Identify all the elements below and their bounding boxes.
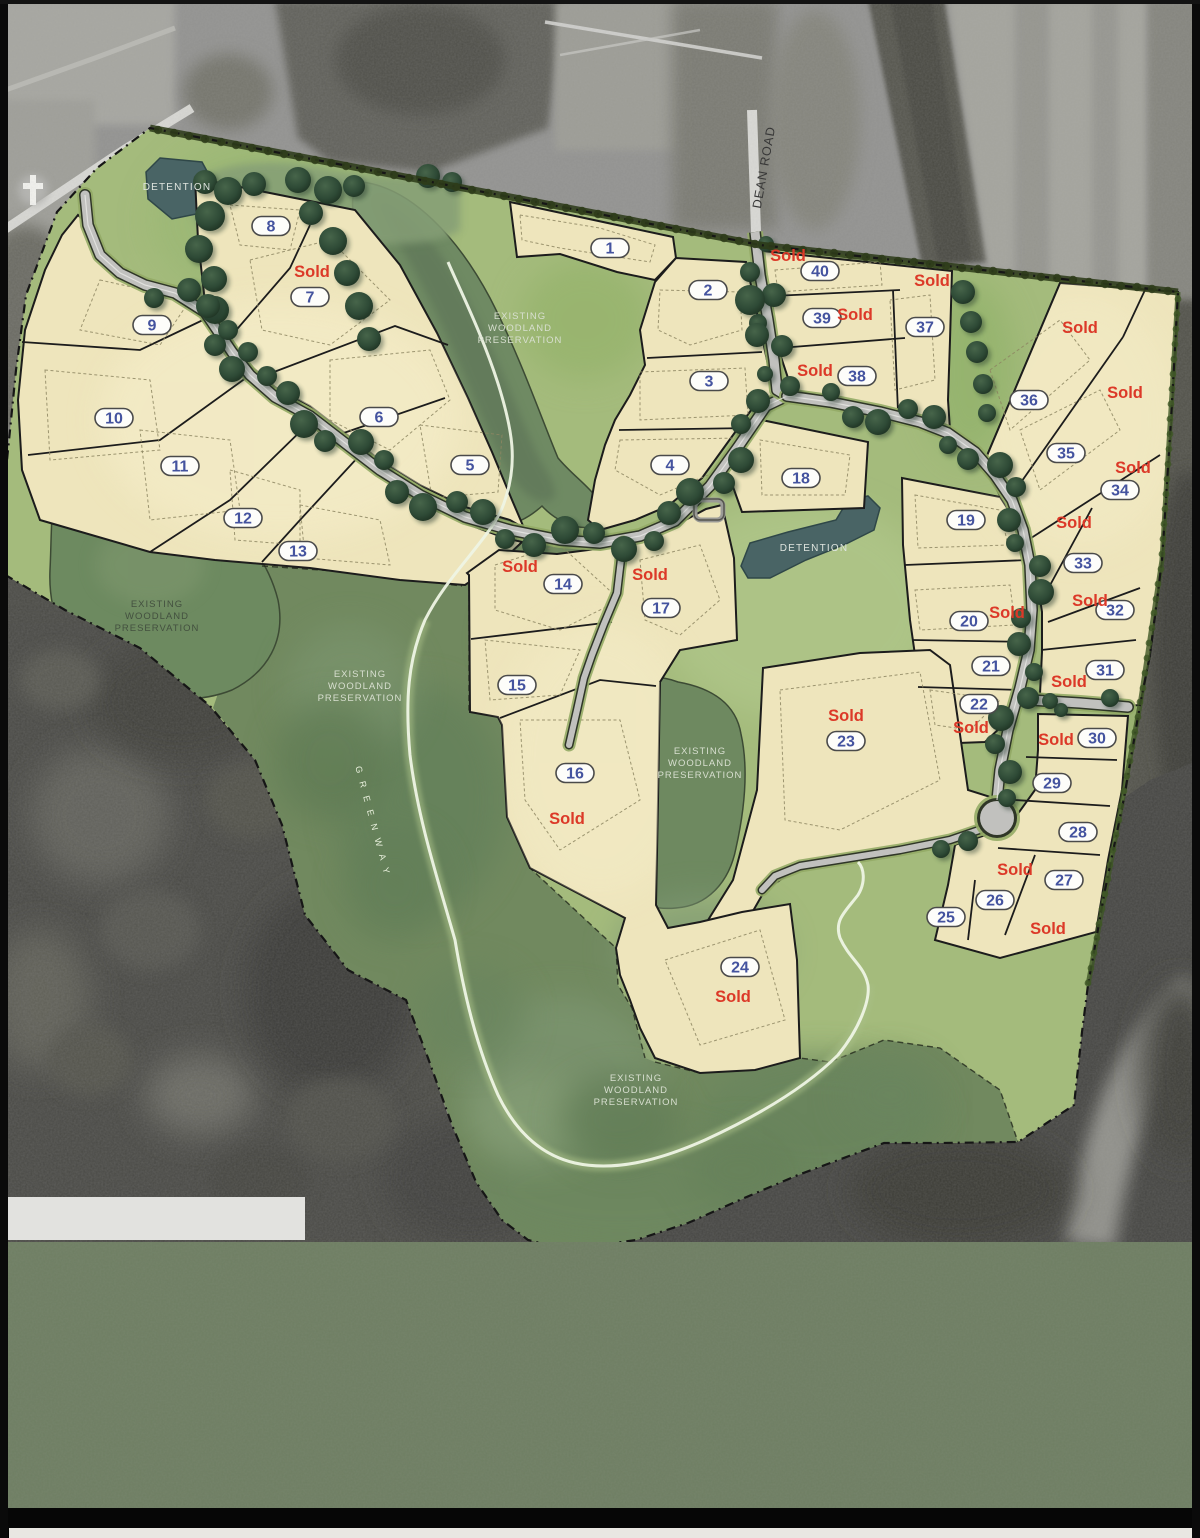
svg-text:Sold: Sold: [1056, 514, 1092, 532]
svg-text:Sold: Sold: [1051, 673, 1087, 691]
svg-text:Sold: Sold: [502, 558, 538, 576]
svg-text:40: 40: [811, 264, 829, 281]
svg-text:PRESERVATION: PRESERVATION: [594, 1097, 679, 1108]
svg-text:37: 37: [916, 320, 934, 337]
svg-text:DETENTION: DETENTION: [780, 543, 849, 554]
svg-text:10: 10: [105, 411, 123, 428]
svg-text:32: 32: [1106, 603, 1124, 620]
svg-text:28: 28: [1069, 825, 1087, 842]
svg-text:Sold: Sold: [989, 604, 1025, 622]
svg-text:12: 12: [234, 511, 252, 528]
svg-text:Sold: Sold: [715, 988, 751, 1006]
svg-text:1: 1: [606, 241, 615, 258]
svg-text:29: 29: [1043, 776, 1061, 793]
svg-text:DETENTION: DETENTION: [143, 182, 212, 193]
svg-text:25: 25: [937, 910, 955, 927]
svg-text:Sold: Sold: [770, 247, 806, 265]
svg-text:Sold: Sold: [914, 272, 950, 290]
svg-text:Sold: Sold: [1072, 592, 1108, 610]
svg-text:33: 33: [1074, 556, 1092, 573]
svg-text:23: 23: [837, 734, 855, 751]
svg-text:Sold: Sold: [797, 362, 833, 380]
svg-text:Sold: Sold: [997, 861, 1033, 879]
svg-text:Sold: Sold: [1062, 319, 1098, 337]
svg-text:39: 39: [813, 311, 831, 328]
svg-text:35: 35: [1057, 446, 1075, 463]
svg-text:WOODLAND: WOODLAND: [328, 681, 392, 692]
svg-text:31: 31: [1096, 663, 1114, 680]
svg-text:14: 14: [554, 577, 572, 594]
svg-text:34: 34: [1111, 483, 1129, 500]
svg-text:Sold: Sold: [632, 566, 668, 584]
svg-text:6: 6: [375, 410, 384, 427]
svg-text:30: 30: [1088, 731, 1106, 748]
svg-text:Sold: Sold: [828, 707, 864, 725]
svg-text:Sold: Sold: [549, 810, 585, 828]
svg-text:EXISTING: EXISTING: [610, 1073, 662, 1084]
svg-text:Sold: Sold: [1107, 384, 1143, 402]
svg-text:18: 18: [792, 471, 810, 488]
svg-text:11: 11: [172, 459, 189, 476]
svg-text:20: 20: [960, 614, 978, 631]
svg-text:EXISTING: EXISTING: [131, 599, 183, 610]
svg-text:27: 27: [1055, 873, 1073, 890]
svg-text:EXISTING: EXISTING: [494, 311, 546, 322]
svg-text:Sold: Sold: [1115, 459, 1151, 477]
svg-text:24: 24: [731, 960, 749, 977]
svg-text:7: 7: [306, 290, 315, 307]
svg-text:WOODLAND: WOODLAND: [488, 323, 552, 334]
svg-text:2: 2: [704, 283, 713, 300]
svg-text:26: 26: [986, 893, 1004, 910]
svg-text:PRESERVATION: PRESERVATION: [478, 335, 563, 346]
svg-text:22: 22: [970, 697, 988, 714]
svg-text:38: 38: [848, 369, 866, 386]
svg-text:9: 9: [148, 318, 157, 335]
svg-text:13: 13: [289, 544, 307, 561]
svg-text:36: 36: [1020, 393, 1038, 410]
svg-text:21: 21: [982, 659, 1000, 676]
svg-text:WOODLAND: WOODLAND: [668, 758, 732, 769]
svg-text:19: 19: [957, 513, 975, 530]
svg-text:PRESERVATION: PRESERVATION: [115, 623, 200, 634]
svg-text:PRESERVATION: PRESERVATION: [318, 693, 403, 704]
svg-text:WOODLAND: WOODLAND: [604, 1085, 668, 1096]
svg-text:3: 3: [705, 374, 714, 391]
svg-text:8: 8: [267, 219, 276, 236]
svg-text:Sold: Sold: [294, 263, 330, 281]
svg-text:PRESERVATION: PRESERVATION: [658, 770, 743, 781]
svg-text:EXISTING: EXISTING: [334, 669, 386, 680]
svg-text:Sold: Sold: [837, 306, 873, 324]
svg-text:17: 17: [652, 601, 670, 618]
svg-text:16: 16: [566, 766, 584, 783]
svg-text:15: 15: [508, 678, 526, 695]
svg-text:4: 4: [666, 458, 675, 475]
svg-text:Sold: Sold: [1030, 920, 1066, 938]
svg-text:Sold: Sold: [953, 719, 989, 737]
svg-text:5: 5: [466, 458, 475, 475]
svg-text:WOODLAND: WOODLAND: [125, 611, 189, 622]
svg-text:EXISTING: EXISTING: [674, 746, 726, 757]
svg-text:Sold: Sold: [1038, 731, 1074, 749]
